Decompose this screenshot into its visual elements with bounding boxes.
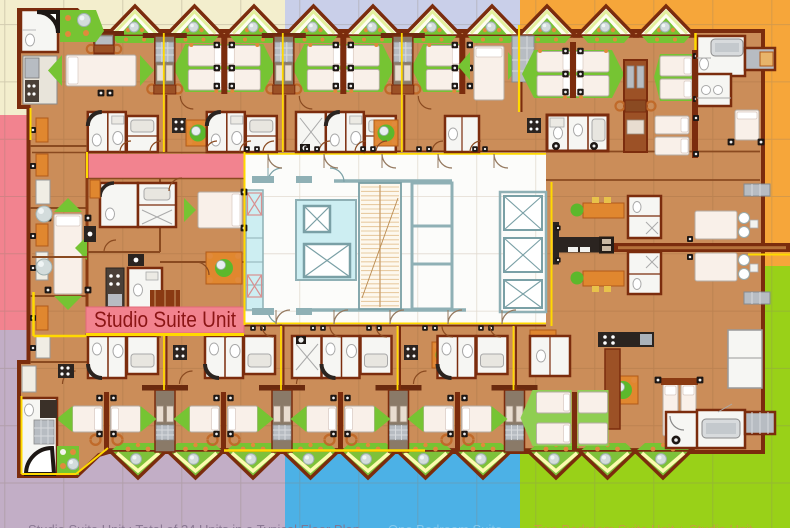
svg-text:Studio Suite Unit: Studio Suite Unit bbox=[94, 307, 236, 332]
svg-text:Two Bedroom Suite Unit + Studi: Two Bedroom Suite Unit + Studio Unit bbox=[534, 522, 753, 528]
svg-text:Studio Suite Unit : Total of 2: Studio Suite Unit : Total of 24 Units in… bbox=[28, 522, 360, 528]
svg-text:One Bedroom Suite: One Bedroom Suite bbox=[388, 522, 502, 528]
